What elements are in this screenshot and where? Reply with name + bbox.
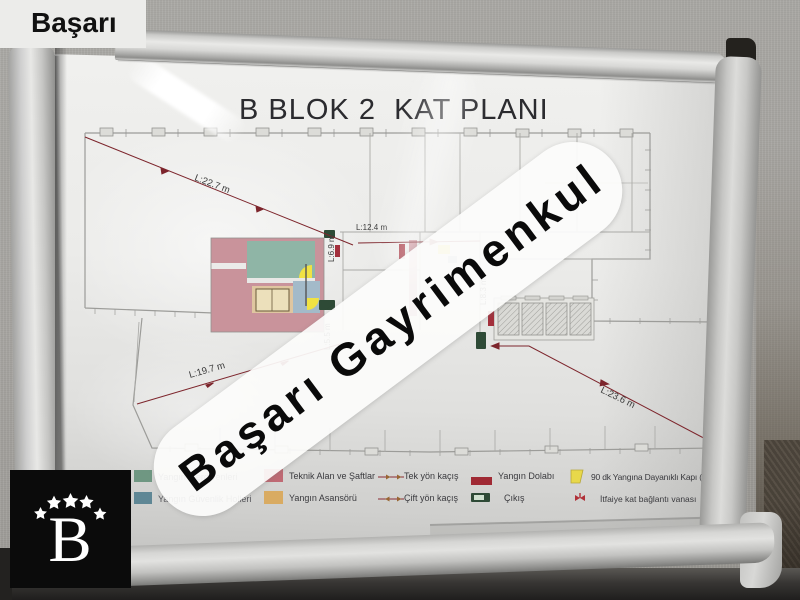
svg-text:L:6.9 m: L:6.9 m <box>327 235 336 262</box>
svg-text:L:23.6 m: L:23.6 m <box>599 385 637 411</box>
svg-text:L:22.7 m: L:22.7 m <box>193 173 232 197</box>
svg-text:B: B <box>48 504 91 576</box>
svg-text:L:19.7 m: L:19.7 m <box>188 360 227 381</box>
